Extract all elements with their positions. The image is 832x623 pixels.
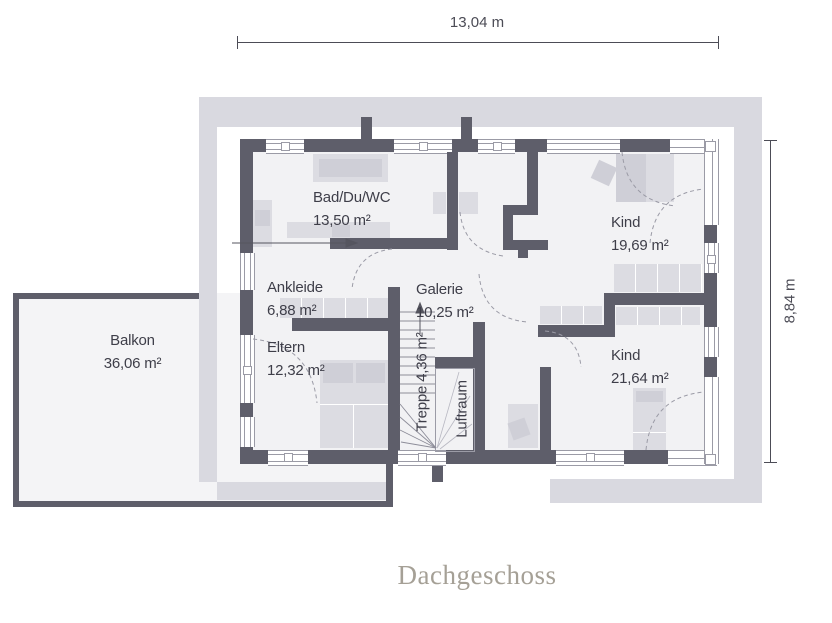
- room-area: 19,69 m²: [611, 234, 669, 257]
- balcony-wall-bottom: [13, 501, 393, 507]
- wardrobe-kind-nord: [614, 264, 702, 292]
- corner-window: [704, 377, 719, 464]
- window: [704, 327, 719, 357]
- room-area: 36,06 m²: [70, 352, 195, 375]
- wall-segment: [704, 357, 717, 377]
- room-name: Bad/Du/WC: [313, 186, 390, 209]
- dimension-width-label: 13,04 m: [377, 14, 577, 31]
- bed-line: [633, 432, 666, 433]
- galerie-sideboard: [540, 306, 602, 324]
- dimension-tick: [764, 462, 777, 463]
- balcony-wall-top: [13, 293, 199, 299]
- room-label-kind-nord: Kind 19,69 m²: [611, 211, 669, 257]
- roof-band-right: [734, 127, 762, 503]
- wall-bad-east: [447, 152, 458, 250]
- dimension-width-line: [237, 42, 718, 43]
- room-area: 10,25 m²: [416, 301, 474, 324]
- bed-kind-sued-pillow: [636, 391, 663, 402]
- bed-kind-nord-blanket: [616, 154, 646, 202]
- wall-segment: [624, 450, 668, 464]
- wall-segment: [308, 450, 398, 464]
- window-mullion: [707, 255, 716, 264]
- window-mullion: [493, 142, 502, 151]
- roof-band-left: [199, 127, 217, 482]
- radiator: [433, 192, 446, 214]
- pillow: [323, 363, 353, 383]
- dimension-tick: [718, 36, 719, 49]
- dimension-tick: [764, 140, 777, 141]
- wall-segment: [704, 273, 717, 327]
- room-area: 13,50 m²: [313, 209, 390, 232]
- wall-segment: [620, 139, 670, 152]
- wall-segment: [515, 139, 547, 152]
- window-mullion: [243, 366, 252, 375]
- room-label-balkon: Balkon 36,06 m²: [70, 329, 195, 375]
- radiator: [459, 192, 478, 214]
- wall-jog: [604, 293, 615, 337]
- balcony-wall-left: [13, 293, 19, 507]
- wall-kind-sued-west: [540, 367, 551, 450]
- room-name: Kind: [611, 344, 669, 367]
- window-mullion: [284, 453, 293, 462]
- wall-segment: [446, 450, 556, 464]
- floor-plan: Bad/Du/WC 13,50 m² Ankleide 6,88 m² Gale…: [0, 0, 832, 623]
- room-area: 21,64 m²: [611, 367, 669, 390]
- wall-duct: [503, 205, 538, 215]
- wall-duct: [518, 250, 528, 258]
- corner-post: [705, 141, 716, 152]
- window: [547, 139, 620, 154]
- room-name: Balkon: [70, 329, 195, 352]
- room-label-bad: Bad/Du/WC 13,50 m²: [313, 186, 390, 232]
- window-mullion: [586, 453, 595, 462]
- wall-segment: [240, 450, 268, 464]
- wall-segment: [240, 290, 253, 335]
- wall-bad-south: [330, 238, 458, 249]
- window-mullion: [419, 142, 428, 151]
- balcony-wall-stub: [386, 458, 393, 507]
- bed-line: [353, 404, 354, 448]
- room-area: 6,88 m²: [267, 299, 323, 322]
- room-label-eltern: Eltern 12,32 m²: [267, 336, 325, 382]
- room-name: Eltern: [267, 336, 325, 359]
- room-label-treppe: Treppe 4,36 m²: [414, 332, 431, 431]
- corner-post: [705, 454, 716, 465]
- bathtub-inner: [319, 159, 382, 177]
- room-label-kind-sued: Kind 21,64 m²: [611, 344, 669, 390]
- room-area: 12,32 m²: [267, 359, 325, 382]
- wall-eltern-treppe: [388, 287, 400, 450]
- dimension-height-label: 8,84 m: [782, 279, 799, 324]
- window-mullion: [281, 142, 290, 151]
- room-name: Ankleide: [267, 276, 323, 299]
- wall-duct: [503, 240, 548, 250]
- bed-line: [320, 404, 388, 405]
- window: [240, 417, 255, 447]
- wall-kind-nord-sued: [615, 293, 704, 305]
- window-mullion: [418, 453, 427, 462]
- roof-band-bottom-left: [217, 482, 387, 500]
- room-label-galerie: Galerie 10,25 m²: [416, 278, 474, 324]
- dimension-tick: [237, 36, 238, 49]
- wall-segment: [240, 139, 253, 253]
- dimension-height-line: [770, 140, 771, 463]
- room-label-luftraum: Luftraum: [454, 380, 471, 438]
- sink: [255, 210, 270, 226]
- wall-segment: [704, 225, 717, 243]
- window: [240, 253, 255, 290]
- roof-band-top: [199, 97, 762, 127]
- plan-title: Dachgeschoss: [327, 560, 627, 591]
- chimney-stub: [361, 117, 372, 141]
- wall-galerie-kind-sued: [538, 325, 614, 337]
- room-label-ankleide: Ankleide 6,88 m²: [267, 276, 323, 322]
- wall-segment: [304, 139, 394, 152]
- roof-band-bottom-right: [550, 479, 734, 503]
- pillow: [356, 363, 385, 383]
- wall-segment: [240, 403, 253, 417]
- wardrobe-kind-sued: [616, 307, 700, 325]
- wall-luftraum-north: [435, 357, 473, 368]
- chimney-stub: [461, 117, 472, 141]
- room-name: Galerie: [416, 278, 474, 301]
- room-name: Kind: [611, 211, 669, 234]
